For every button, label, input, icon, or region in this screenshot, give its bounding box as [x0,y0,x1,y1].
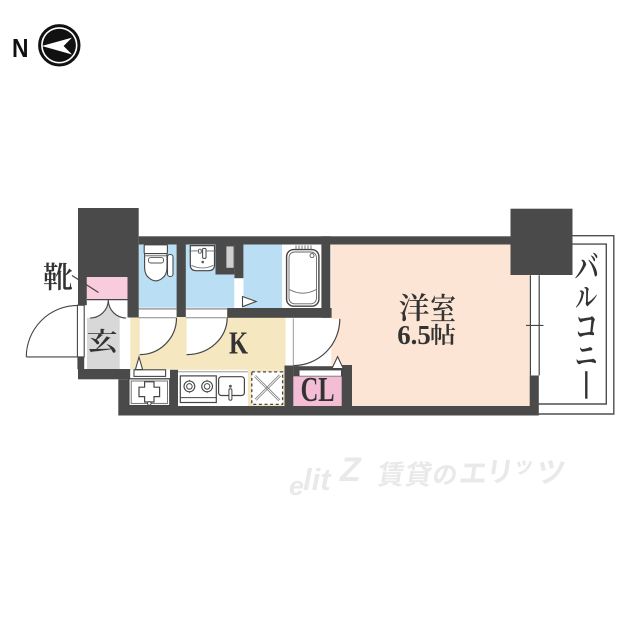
svg-text:lit: lit [303,462,332,497]
svg-text:CL: CL [301,370,335,409]
svg-text:6.5: 6.5 [397,320,431,350]
svg-text:N: N [12,33,29,63]
svg-text:K: K [229,324,248,360]
svg-text:e: e [289,471,304,501]
svg-text:Z: Z [339,451,362,489]
